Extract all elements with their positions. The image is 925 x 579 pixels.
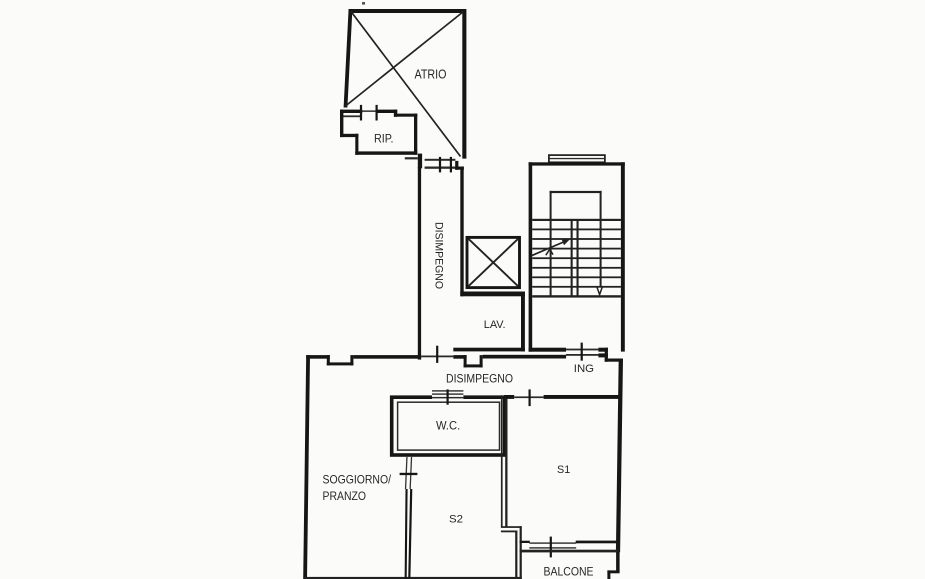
svg-text:S2: S2 [449, 513, 463, 525]
svg-text:ING: ING [574, 363, 594, 375]
svg-text:BALCONE: BALCONE [544, 565, 594, 579]
svg-text:SOGGIORNO/: SOGGIORNO/ [323, 473, 392, 487]
svg-text:LAV.: LAV. [484, 319, 506, 331]
svg-text:W.C.: W.C. [436, 419, 460, 433]
svg-text:S1: S1 [557, 464, 570, 476]
svg-text:ATRIO: ATRIO [415, 67, 447, 82]
svg-text:PRANZO: PRANZO [323, 489, 367, 503]
svg-text:DISIMPEGNO: DISIMPEGNO [433, 222, 445, 289]
svg-text:DISIMPEGNO: DISIMPEGNO [446, 372, 513, 385]
svg-text:RIP.: RIP. [374, 132, 394, 145]
